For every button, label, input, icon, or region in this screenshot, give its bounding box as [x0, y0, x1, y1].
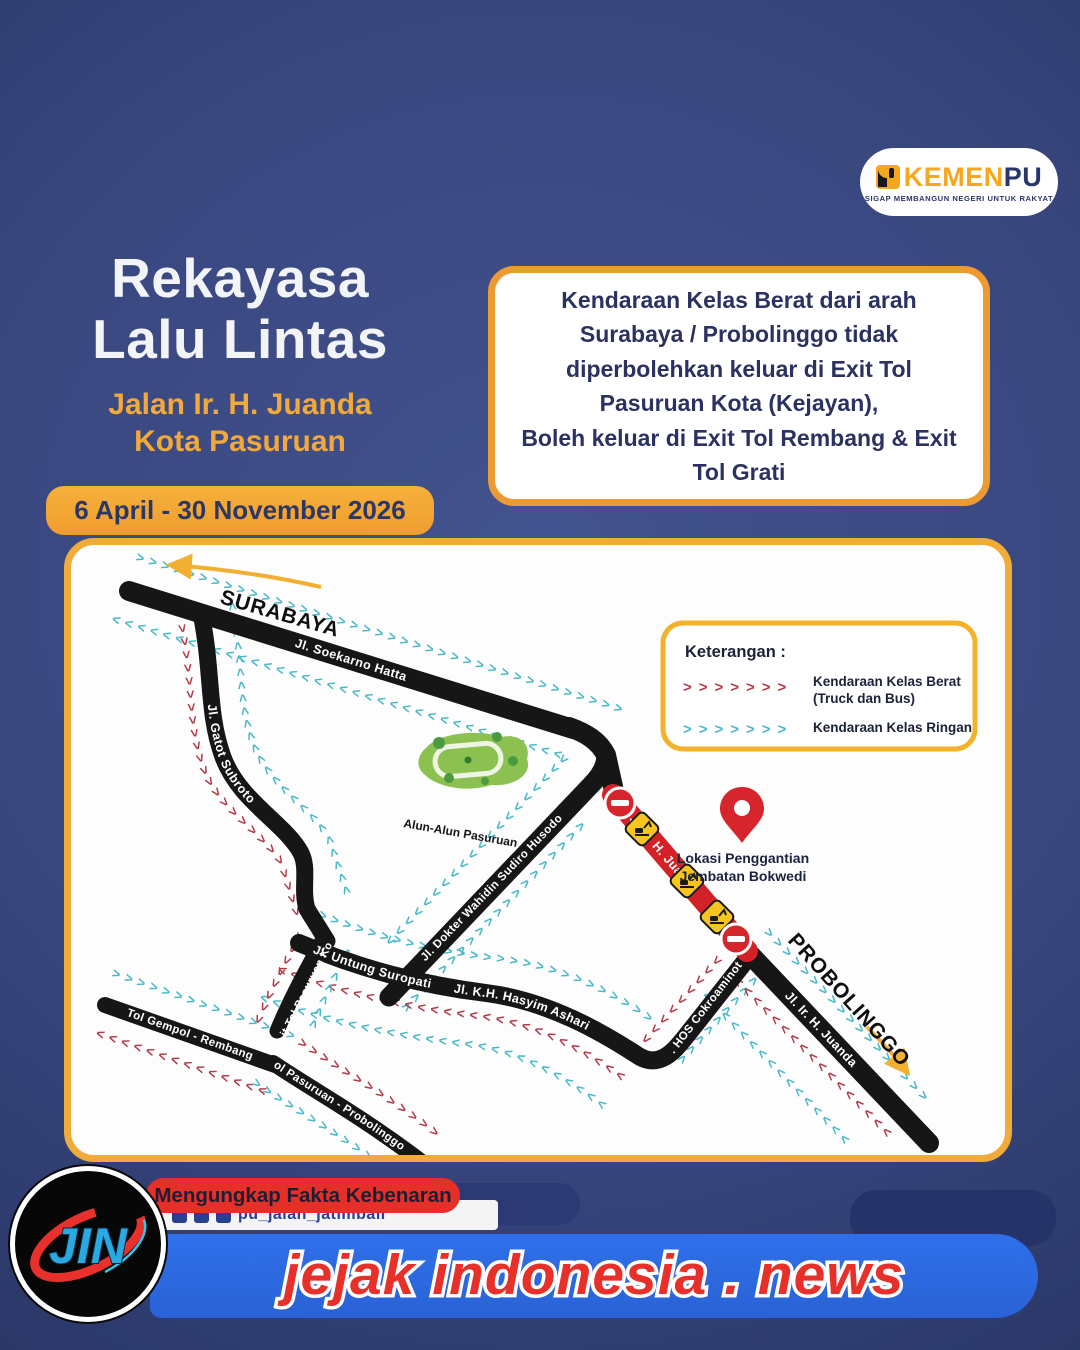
svg-text:<<<<<<<<<<<<<<<<<<: <<<<<<<<<<<<<<<<<< — [721, 964, 899, 1144]
brand-banner: jejak indonesia . news — [150, 1234, 1038, 1318]
subtitle-line1: Jalan Ir. H. Juanda — [28, 387, 452, 424]
park-alun-alun — [418, 732, 528, 789]
legend-heavy-label1: Kendaraan Kelas Berat — [813, 674, 961, 689]
logo-tagline: SIGAP MEMBANGUN NEGERI UNTUK RAKYAT — [865, 194, 1053, 203]
subtitle-line2: Kota Pasuruan — [28, 424, 452, 461]
pin-label-line1: Lokasi Penggantian — [677, 850, 809, 866]
brand-banner-text: jejak indonesia . news — [150, 1234, 1038, 1318]
legend: Keterangan : >>>>>>> Kendaraan Kelas Ber… — [663, 623, 975, 749]
legend-heavy-label2: (Truck dan Bus) — [813, 691, 915, 706]
legend-title: Keterangan : — [685, 643, 786, 661]
jin-logo: JIN — [10, 1166, 166, 1322]
notice-box: Kendaraan Kelas Berat dari arah Surabaya… — [488, 266, 990, 506]
brand-name: jejak indonesia . news — [277, 1243, 905, 1307]
notice-line: diperbolehkan keluar di Exit Tol — [510, 352, 969, 387]
legend-heavy-chevrons: >>>>>>> — [683, 679, 793, 696]
legend-light-label: Kendaraan Kelas Ringan — [813, 720, 972, 735]
no-entry-sign-icon — [721, 924, 751, 954]
location-pin-icon — [720, 787, 764, 843]
notice-line: Kendaraan Kelas Berat dari arah — [510, 283, 969, 318]
legend-light-chevrons: >>>>>>> — [683, 721, 793, 738]
notice-text: Kendaraan Kelas Berat dari arah Surabaya… — [510, 283, 969, 490]
logo-kemen: KEMEN — [904, 162, 1004, 192]
pin-label-line2: Jembatan Bokwedi — [680, 868, 807, 884]
page-title: Rekayasa Lalu Lintas — [28, 248, 452, 369]
traffic-advisory-poster: KEMENPU SIGAP MEMBANGUN NEGERI UNTUK RAK… — [0, 0, 1080, 1350]
jin-logo-art: JIN — [15, 1171, 161, 1317]
traffic-map: >>>>>>>>>>>>>>>>>>>>>>>>>>>>>>>>>>>>>>>>… — [71, 545, 1005, 1155]
kemenpu-logo: KEMENPU SIGAP MEMBANGUN NEGERI UNTUK RAK… — [860, 148, 1058, 216]
kemenpu-icon — [876, 165, 900, 189]
page-subtitle: Jalan Ir. H. Juanda Kota Pasuruan — [28, 387, 452, 460]
logo-pu: PU — [1004, 162, 1043, 192]
title-block: Rekayasa Lalu Lintas Jalan Ir. H. Juanda… — [28, 248, 452, 535]
notice-line: Surabaya / Probolinggo tidak — [510, 317, 969, 352]
title-line2: Lalu Lintas — [28, 309, 452, 370]
svg-text:>>>>>>>>>>>>>>>>>>>>>>>>>>>>>>: >>>>>>>>>>>>>>>>>>>>>>>>>>>>>>>> — [71, 545, 661, 1028]
date-range-badge: 6 April - 30 November 2026 — [46, 486, 433, 535]
title-line1: Rekayasa — [28, 248, 452, 309]
map-panel: >>>>>>>>>>>>>>>>>>>>>>>>>>>>>>>>>>>>>>>>… — [64, 538, 1012, 1162]
footer-tagline-badge: Mengungkap Fakta Kebenaran — [146, 1178, 460, 1213]
no-entry-sign-icon — [605, 788, 635, 818]
jin-logo-text: JIN — [49, 1218, 128, 1274]
notice-line: Pasuruan Kota (Kejayan), — [510, 386, 969, 421]
notice-line: Tol Grati — [510, 455, 969, 490]
notice-line: Boleh keluar di Exit Tol Rembang & Exit — [510, 421, 969, 456]
